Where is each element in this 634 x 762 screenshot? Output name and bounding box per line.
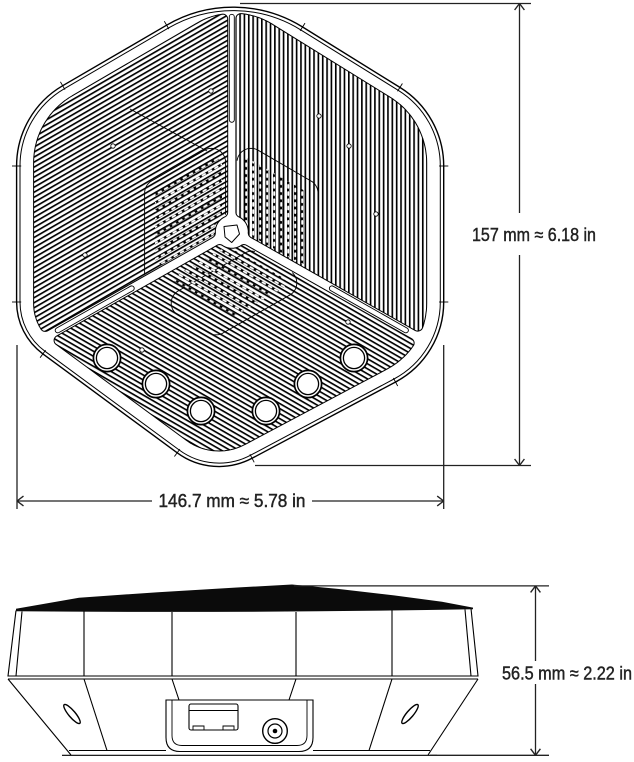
svg-text:56.5 mm ≈ 2.22 in: 56.5 mm ≈ 2.22 in xyxy=(502,663,632,684)
svg-text:146.7 mm ≈ 5.78 in: 146.7 mm ≈ 5.78 in xyxy=(159,490,306,511)
svg-text:157 mm ≈ 6.18 in: 157 mm ≈ 6.18 in xyxy=(472,224,596,245)
